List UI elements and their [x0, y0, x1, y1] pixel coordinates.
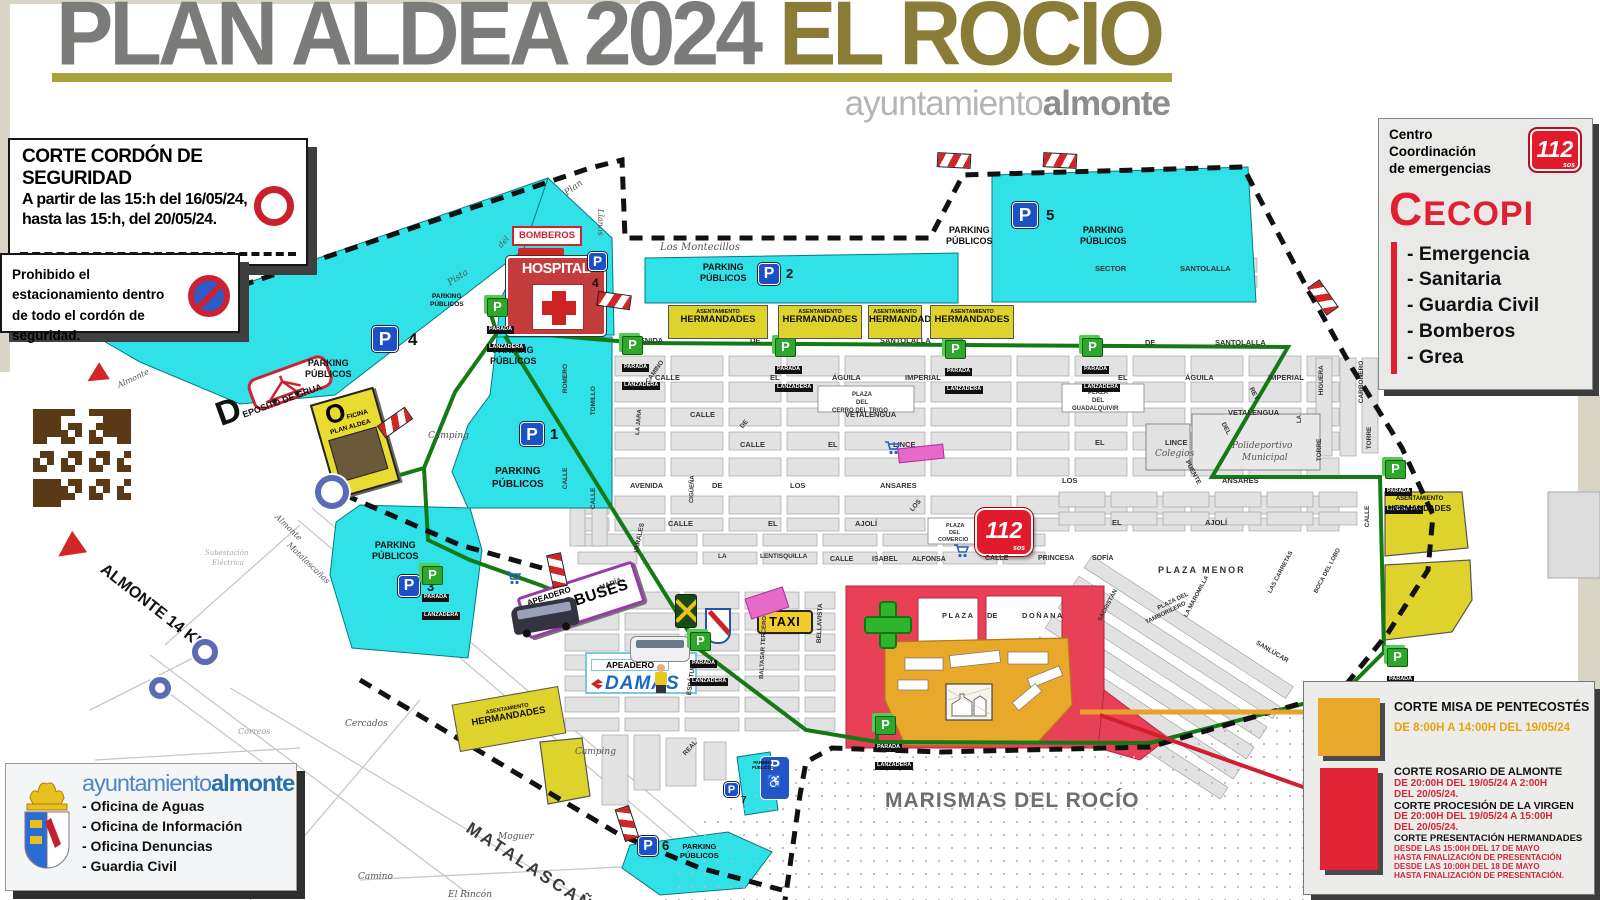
damas-bus-icon	[630, 636, 690, 662]
security-cordon-title: CORTE CORDÓN DE SEGURIDAD	[22, 146, 294, 190]
street-label: Eléctrica	[212, 560, 244, 567]
street-label: LA	[718, 554, 727, 561]
shuttle-stop-marker: PPARADALANZADERA	[1082, 338, 1142, 393]
parking-p-badge: P	[520, 422, 544, 446]
street-label: AVENIDA	[630, 482, 663, 490]
parking-name: PARKINGPÚBLICOS	[372, 540, 419, 563]
street-label: Colegios	[1155, 450, 1194, 459]
list-item: - Grea	[1407, 345, 1582, 371]
street-label: Los Montecillos	[660, 243, 740, 253]
damas-logo-icon	[591, 679, 603, 689]
shuttle-stop-marker: PPARADALANZADERA	[690, 632, 750, 687]
street-label: HIGUERA	[1319, 365, 1326, 395]
parking-name: PARKINGPÚBLICOS	[305, 358, 352, 381]
street-label: LOS	[910, 499, 924, 513]
street-label: ANSARES	[880, 482, 917, 490]
council-coat-of-arms	[18, 776, 76, 876]
no-parking-box: Prohibido el estacionamiento dentro de t…	[0, 253, 240, 333]
parking-p-badge: P	[1012, 202, 1038, 228]
parking-name: PARKINGPÚBLICOS	[946, 225, 993, 248]
street-label: DEL	[1219, 422, 1231, 437]
street-label: VARALES	[634, 523, 647, 554]
bomberos-station: BOMBEROS	[512, 226, 582, 246]
hermandades-camp: ASENTAMIENTOHERMANDADES	[930, 305, 1014, 339]
no-parking-icon	[188, 275, 230, 317]
street-label: CALLE	[690, 411, 715, 419]
street-label: ALFONSA	[912, 556, 946, 563]
parking-number: 4	[408, 330, 417, 350]
parking-name: PARKINGPÚBLICOS	[700, 262, 747, 285]
header-brand: ayuntamientoalmonte	[700, 84, 1170, 124]
road-closure-icon	[615, 805, 640, 842]
street-label: SECTOR	[1095, 265, 1126, 273]
hermandades-camp: ASENTAMIENTOHERMANDADES	[868, 305, 922, 339]
street-label: DE	[987, 612, 997, 620]
street-label: LINCE	[1165, 439, 1188, 447]
parking-p-badge: P	[758, 263, 780, 285]
street-label: PUENTE	[1183, 460, 1201, 486]
hermandades-camp-label: ASENTAMIENTOHERMANDADES	[1388, 496, 1451, 514]
road-closure-icon	[1043, 152, 1078, 169]
parking-name: PARKINGPÚBLICOS	[752, 760, 774, 771]
street-label: LA	[1297, 415, 1303, 423]
parking-name: PARKINGPÚBLICOS	[430, 293, 464, 309]
street-label: DEL	[949, 531, 960, 537]
parking-name: PARKINGPÚBLICOS	[492, 466, 544, 491]
street-label: CALLE	[740, 441, 765, 449]
road-closure-icon	[377, 407, 413, 439]
street-label: Pista	[447, 268, 471, 288]
hermandades-camp: ASENTAMIENTOHERMANDADES	[668, 305, 768, 339]
street-label: Municipal	[1242, 454, 1288, 463]
shuttle-stop-marker: PPARADALANZADERA	[622, 336, 682, 391]
street-label: DEL	[1092, 398, 1104, 404]
emergency-112-logo: 112 sos	[1528, 127, 1582, 173]
street-label: VETALENGUA	[1228, 409, 1279, 417]
parking-number: 4	[592, 276, 599, 290]
parking-p-badge: P	[638, 836, 658, 856]
street-label: DE	[1145, 339, 1155, 347]
street-label: EL	[768, 520, 778, 528]
misa-color-swatch	[1318, 698, 1380, 756]
shuttle-stop-marker: PPARADALANZADERA	[945, 340, 1005, 395]
street-label: Llanos	[596, 209, 604, 236]
street-label: Camping	[575, 748, 616, 757]
street-label: SACRISTÁN	[1097, 589, 1119, 623]
shuttle-stop-marker: PPARADALANZADERA	[422, 566, 482, 621]
street-label: LOS	[1062, 477, 1077, 485]
roundabout-icon	[149, 677, 171, 699]
street-label: ANSARES	[1222, 477, 1259, 485]
qr-code	[30, 400, 134, 504]
parking-p-badge: P	[372, 326, 398, 352]
street-label: CALLE	[668, 520, 693, 528]
street-label: SOFÍA	[1092, 555, 1113, 562]
street-label: Plan	[563, 179, 585, 198]
road-closure-icon	[937, 152, 972, 169]
street-label: CERRO DEL TRIGO	[832, 408, 888, 414]
street-label: PLAZA	[852, 392, 872, 398]
street-label: Almonte	[273, 513, 303, 542]
street-label: CALLE	[830, 556, 853, 563]
street-label: DE	[740, 419, 751, 430]
street-label: AJOLÍ	[855, 520, 877, 528]
street-label: GUADALQUIVIR	[1072, 406, 1118, 412]
street-label: REY	[1247, 387, 1259, 402]
hermandades-camp: ASENTAMIENTOHERMANDADES	[778, 305, 862, 339]
title-underline	[52, 73, 1172, 82]
shuttle-stop-marker: PPARADALANZADERA	[487, 298, 547, 353]
roundabout-icon	[192, 639, 218, 665]
red-ring-icon	[254, 186, 294, 226]
parking-number: 6	[662, 838, 669, 853]
list-item: - Oficina Denuncias	[82, 837, 288, 857]
street-label: Cercados	[345, 720, 388, 729]
parking-number: 5	[1046, 207, 1054, 224]
street-label: DOÑANA	[1022, 612, 1064, 620]
cecopi-box: Centro Coordinación de emergencias 112 s…	[1378, 118, 1593, 390]
street-label: del	[497, 235, 511, 250]
street-label: CALLE	[591, 488, 598, 510]
street-label: AJOLÍ	[1205, 519, 1227, 527]
street-label: El Rincón	[448, 891, 492, 900]
street-label: PLAZA	[946, 524, 964, 530]
shuttle-stop-marker: PPARADALANZADERA	[875, 716, 935, 771]
cecopi-title: CECOPI	[1389, 182, 1582, 236]
street-label: SANTOLALLA	[1180, 265, 1231, 273]
street-label: IMPERIAL	[905, 374, 941, 382]
street-label: ÁGUILA	[1185, 374, 1214, 382]
council-brand: ayuntamientoalmonte	[82, 770, 288, 797]
guardia-civil-emblem	[675, 594, 697, 628]
direction-arrow-icon	[82, 362, 110, 390]
street-label: Subestación	[205, 550, 248, 557]
street-label: EL	[828, 441, 838, 449]
street-label: PLAZA MENOR	[1158, 566, 1246, 575]
parking-name: PARKINGPÚBLICOS	[680, 842, 719, 861]
parking-number: 1	[550, 426, 558, 443]
list-item: - Sanitaria	[1407, 267, 1582, 293]
street-label: IMPERIAL	[1268, 374, 1304, 382]
street-label: DE	[712, 482, 722, 490]
street-label: CARBONERO	[1359, 361, 1366, 404]
street-label: EL	[1095, 439, 1105, 447]
street-label: ÁGUILA	[832, 374, 861, 382]
street-label: ALMONTE 14 KM	[97, 562, 210, 655]
street-label: SANLÚCAR	[1254, 640, 1289, 664]
road-closures-legend: CORTE MISA DE PENTECOSTÉS DE 8:00H A 14:…	[1303, 681, 1595, 895]
street-label: Polideportivo	[1232, 442, 1292, 451]
marismas-label: MARISMAS DEL ROCÍO	[885, 789, 1139, 813]
supermarket-icon	[953, 543, 969, 563]
street-label: DEL	[856, 400, 868, 406]
street-label: CALLE	[563, 468, 570, 490]
street-label: LOS	[790, 482, 805, 490]
street-label: SANTOLALLA	[1215, 339, 1266, 347]
parking-number: 7	[741, 795, 747, 806]
street-label: BOCA DEL LOBO	[1313, 547, 1342, 594]
list-item: - Emergencia	[1407, 242, 1582, 268]
cecopi-services-list: - Emergencia - Sanitaria - Guardia Civil…	[1391, 242, 1582, 375]
parking-name: PARKINGPÚBLICOS	[1080, 225, 1127, 248]
street-label: TORRE	[1317, 439, 1324, 462]
street-label: PRINCESA	[1038, 555, 1074, 562]
street-label: Camino	[358, 873, 393, 882]
street-label: LA JARA	[635, 409, 643, 435]
direction-arrow-icon	[51, 531, 87, 567]
road-closure-icon	[546, 552, 568, 588]
street-label: BELLAVISTA	[817, 603, 825, 643]
street-label: CALLE	[985, 555, 1008, 562]
steward-icon	[654, 664, 668, 693]
street-label: Camping	[428, 432, 469, 441]
street-label: EL	[1112, 519, 1122, 527]
street-label: ROMERO	[563, 364, 570, 393]
street-label: REAL	[683, 740, 700, 758]
street-label: PLAZA	[942, 612, 975, 620]
roundabout-icon	[315, 475, 349, 509]
street-label: Almonte	[116, 368, 150, 390]
hermandades-camp: ASENTAMIENTOHERMANDADES	[452, 686, 567, 752]
street-label: Matalascañas	[285, 541, 331, 585]
council-offices-box: ayuntamientoalmonte - Oficina de Aguas -…	[5, 763, 297, 891]
shuttle-stop-marker: PPARADALANZADERA	[775, 338, 835, 393]
list-item: - Oficina de Aguas	[82, 797, 288, 817]
street-label: Correos	[238, 728, 270, 736]
street-label: TORRE	[1367, 427, 1374, 450]
list-item: - Guardia Civil	[82, 857, 288, 877]
list-item: - Oficina de Información	[82, 817, 288, 837]
plan-aldea-poster: { "header": { "title_main": "PLAN ALDEA …	[0, 0, 1600, 900]
procession-color-swatch	[1320, 768, 1378, 870]
road-closure-icon	[1307, 279, 1339, 315]
street-label: CIGÜEÑA	[689, 475, 696, 503]
street-label: ISABEL	[872, 556, 898, 563]
parking-p-badge: P	[398, 575, 420, 597]
supermarket-icon	[505, 570, 521, 590]
street-label: CALLE	[1365, 506, 1372, 528]
street-label: LENTISQUILLA	[760, 554, 807, 561]
emergency-112-map-logo: 112 sos	[975, 508, 1033, 556]
parking-p-badge: P	[724, 782, 739, 797]
street-label: LAS CARRETAS	[1267, 550, 1294, 594]
street-label: TOMILLO	[591, 386, 598, 415]
list-item: - Bomberos	[1407, 319, 1582, 345]
parking-p-badge: P	[588, 252, 607, 271]
security-cordon-box: CORTE CORDÓN DE SEGURIDAD A partir de la…	[8, 138, 308, 266]
parking-number: 2	[786, 266, 793, 281]
street-label: MATALASCAÑAS	[463, 819, 621, 900]
list-item: - Guardia Civil	[1407, 293, 1582, 319]
